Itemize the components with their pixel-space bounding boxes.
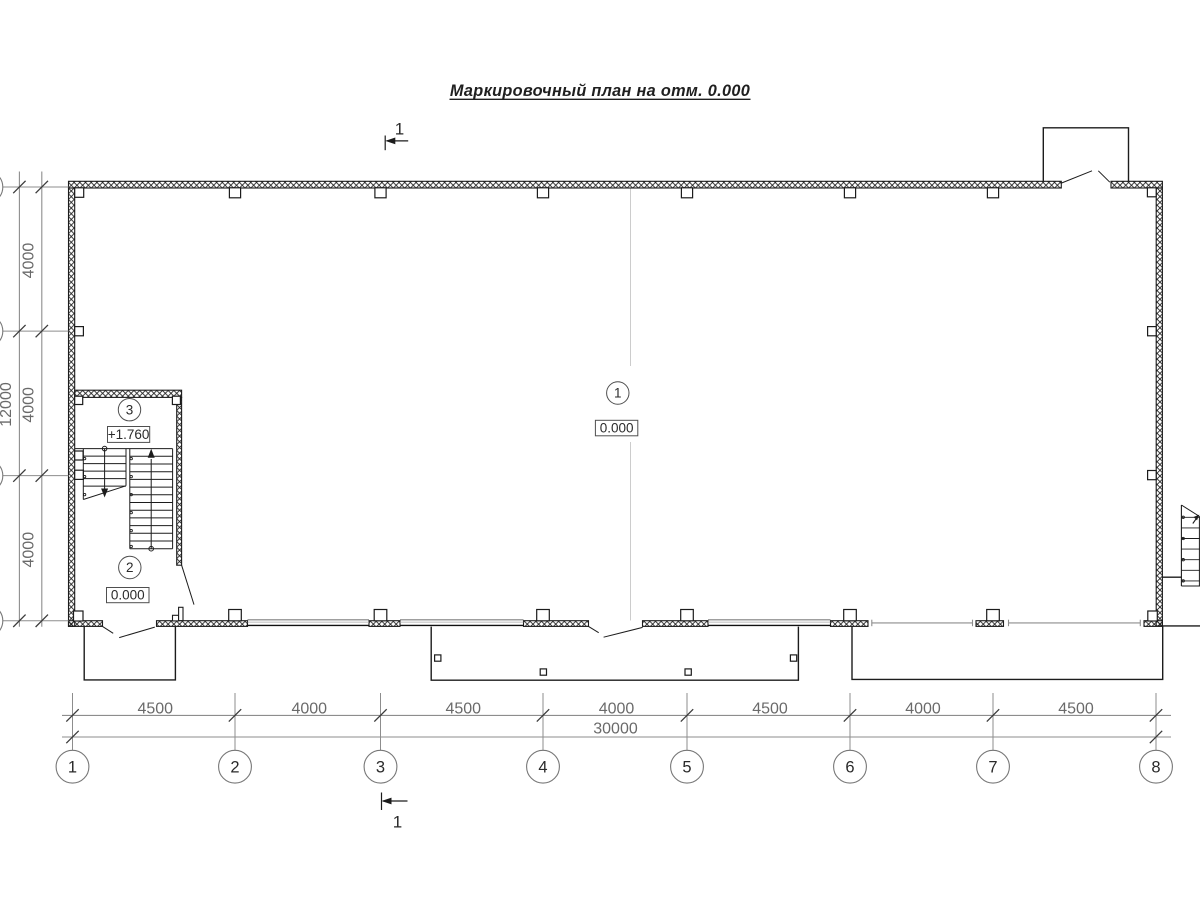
svg-text:0.000: 0.000: [111, 588, 145, 603]
svg-text:7: 7: [988, 758, 997, 776]
svg-text:Маркировочный план на отм. 0.0: Маркировочный план на отм. 0.000: [450, 82, 750, 100]
svg-text:+1.760: +1.760: [108, 427, 150, 442]
svg-text:1: 1: [395, 120, 404, 139]
svg-text:6: 6: [845, 758, 854, 776]
svg-text:2: 2: [126, 560, 134, 575]
svg-text:3: 3: [376, 758, 385, 776]
svg-text:4000: 4000: [21, 387, 38, 423]
svg-text:1: 1: [614, 386, 622, 401]
svg-text:30000: 30000: [593, 721, 638, 738]
svg-text:4000: 4000: [291, 701, 327, 718]
svg-text:12000: 12000: [0, 382, 15, 427]
svg-text:4500: 4500: [445, 701, 481, 718]
svg-text:4000: 4000: [905, 701, 941, 718]
svg-text:4000: 4000: [21, 243, 38, 279]
svg-text:8: 8: [1151, 758, 1160, 776]
svg-text:1: 1: [393, 813, 402, 832]
svg-text:2: 2: [230, 758, 239, 776]
svg-text:4500: 4500: [752, 701, 788, 718]
svg-text:1: 1: [68, 758, 77, 776]
svg-text:5: 5: [682, 758, 691, 776]
svg-text:4000: 4000: [21, 532, 38, 568]
svg-text:4500: 4500: [1058, 701, 1094, 718]
svg-text:3: 3: [126, 402, 134, 417]
svg-text:0.000: 0.000: [600, 421, 634, 436]
svg-text:4000: 4000: [599, 701, 635, 718]
svg-text:4500: 4500: [137, 701, 173, 718]
svg-text:4: 4: [538, 758, 547, 776]
